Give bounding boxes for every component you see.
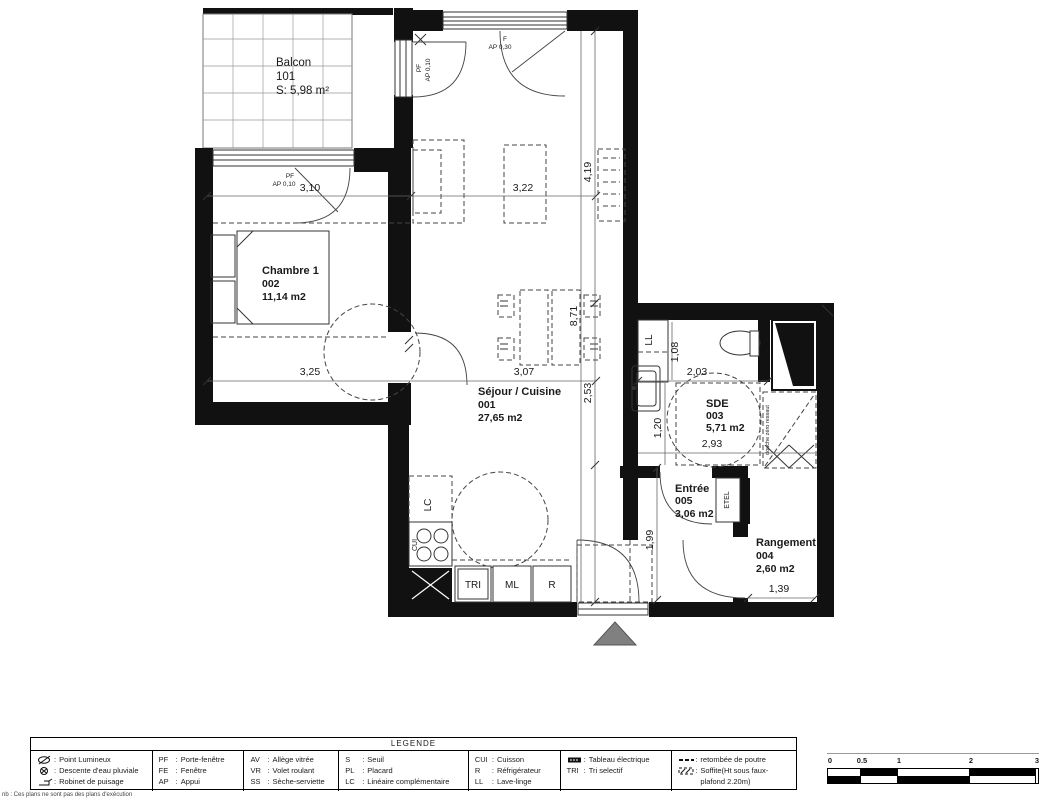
legend-title: LEGENDE [31,738,796,751]
entrance-arrow [594,622,636,645]
soffite-icon [678,766,695,776]
tri-label: TRI [465,580,481,591]
legend-box: LEGENDE : Point Lumineux : Descente d'ea… [30,737,797,790]
entree-number: 005 [675,495,693,507]
sejour-number: 001 [478,399,496,411]
pf-chambre-label: PF [286,173,294,180]
chambre-name: Chambre 1 [262,265,319,277]
sde-name: SDE [706,398,729,410]
balcony: Balcon 101 S: 5,98 m² [203,8,393,148]
legend-col-appliances: CUI:Cuisson R:Réfrigérateur LL:Lave-ling… [468,751,560,791]
ap-top-label: AP 0,30 [488,44,511,51]
floor-plan-drawing: Balcon 101 S: 5,98 m² [0,0,1044,735]
ap-balcon-label: AP 0,10 [425,58,432,81]
entree-area: 3,06 m2 [675,508,714,520]
ap-chambre-label: AP 0,10 [272,181,295,188]
entree-name: Entrée [675,483,709,495]
legend-col-electric: : Tableau électrique TRI:Tri selectif [560,751,672,791]
dim-sde-width2: 2,93 [702,438,723,450]
sde-number: 003 [706,410,724,422]
ll-label: LL [644,334,655,346]
rangement-number: 004 [756,550,774,562]
scale-bar: 0 0.5 1 2 3 [827,753,1039,787]
douche-label: douche zéro ressaut [765,405,771,455]
rangement-area: 2,60 m2 [756,563,795,575]
descente-eau-pluviale-icon [37,766,54,776]
cui-label: CUI [412,539,419,551]
scale-bar-labels: 0 0.5 1 2 3 [827,756,1039,766]
robinet-puisage-icon [37,777,54,787]
dim-sejour-h-top: 4,19 [582,162,594,183]
tableau-electrique-icon [567,755,584,765]
dim-entree-height: 1,99 [644,530,656,551]
f-top-label: F [503,36,507,43]
balcony-number: 101 [276,71,295,83]
bathroom-fixtures: LL douche zéro ressaut [632,320,817,468]
scale-bar-topline [827,753,1039,754]
chambre-area: 11,14 m2 [262,291,306,303]
sejour-area: 27,65 m2 [478,412,523,424]
retombee-poutre-icon [678,755,695,765]
pf-balcon-label: PF [416,64,423,72]
dim-chambre-width: 3,10 [300,182,321,194]
legend-col-misc: S:Seuil PL:Placard LC:Linéaire complémen… [338,751,468,791]
dim-sde-height: 1,20 [652,418,664,439]
lc-label: LC [423,499,434,512]
sejour-name: Séjour / Cuisine [478,386,561,398]
legend-col-symbols: : Point Lumineux : Descente d'eau pluvia… [31,751,152,791]
point-lumineux-icon [37,755,54,765]
dim-sejour-width2: 3,07 [514,366,535,378]
legend-col-glazing: AV:Allège vitrée VR:Volet roulant SS:Sèc… [243,751,338,791]
shower: douche zéro ressaut [763,392,816,468]
scale-bar-segments [827,768,1039,784]
legend-col-openings: PF:Porte-fenêtre FE:Fenêtre AP:Appui [152,751,244,791]
chambre-number: 002 [262,278,280,290]
sde-area: 5,71 m2 [706,422,745,434]
rangement-name: Rangement [756,537,816,549]
dim-sejour-h-total: 8,71 [568,306,580,327]
legend-col-structure: : retombée de poutre : Soffite(Ht sous f… [671,751,796,791]
ml-label: ML [505,580,519,591]
balcony-area: S: 5,98 m² [276,85,329,97]
dim-sde-width: 2,03 [687,366,708,378]
dim-sejour-h-mid: 2,53 [582,383,594,404]
balcony-name: Balcon [276,57,311,69]
footnote: nb : Ces plans ne sont pas des plans d'e… [2,792,132,798]
dim-ll-height: 1,08 [669,342,681,363]
dim-chambre-width2: 3,25 [300,366,321,378]
dim-rangement-width: 1,39 [769,583,790,595]
floorplan-page: { "plan": { "balcon": {"name": "Balcon",… [0,0,1044,800]
entry-fixtures: ETEL [716,478,740,522]
etel-label: ETEL [724,491,731,509]
kitchen: LC CUI TRI ML R [409,476,572,602]
dim-sejour-width: 3,22 [513,182,534,194]
dining-set [498,290,600,365]
r-label: R [548,580,555,591]
